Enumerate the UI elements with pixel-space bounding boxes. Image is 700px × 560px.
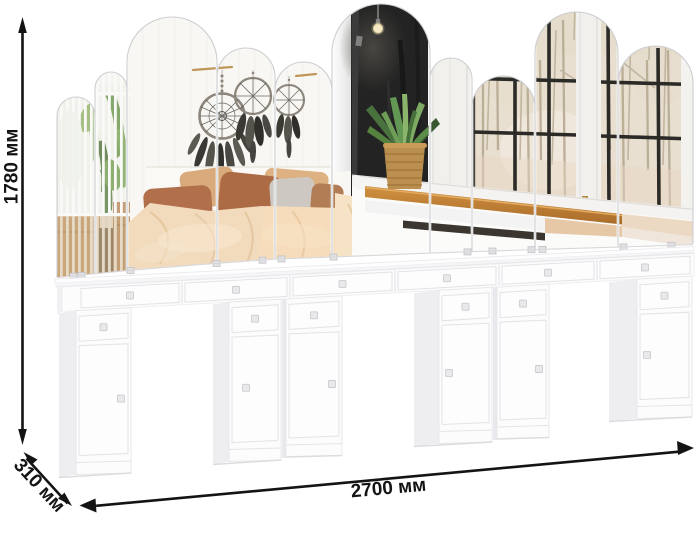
svg-text:1780 мм: 1780 мм <box>2 129 23 205</box>
